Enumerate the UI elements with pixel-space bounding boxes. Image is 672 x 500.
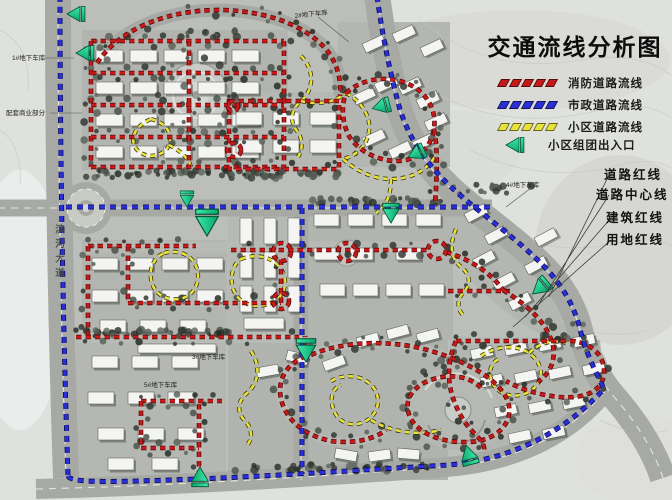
- traffic-analysis-plan: 交通流线分析图 消防道路流线 市政道路流线 小区道路流线 小区组团出入口 道路红…: [0, 0, 672, 500]
- site-plan-map: [0, 0, 672, 500]
